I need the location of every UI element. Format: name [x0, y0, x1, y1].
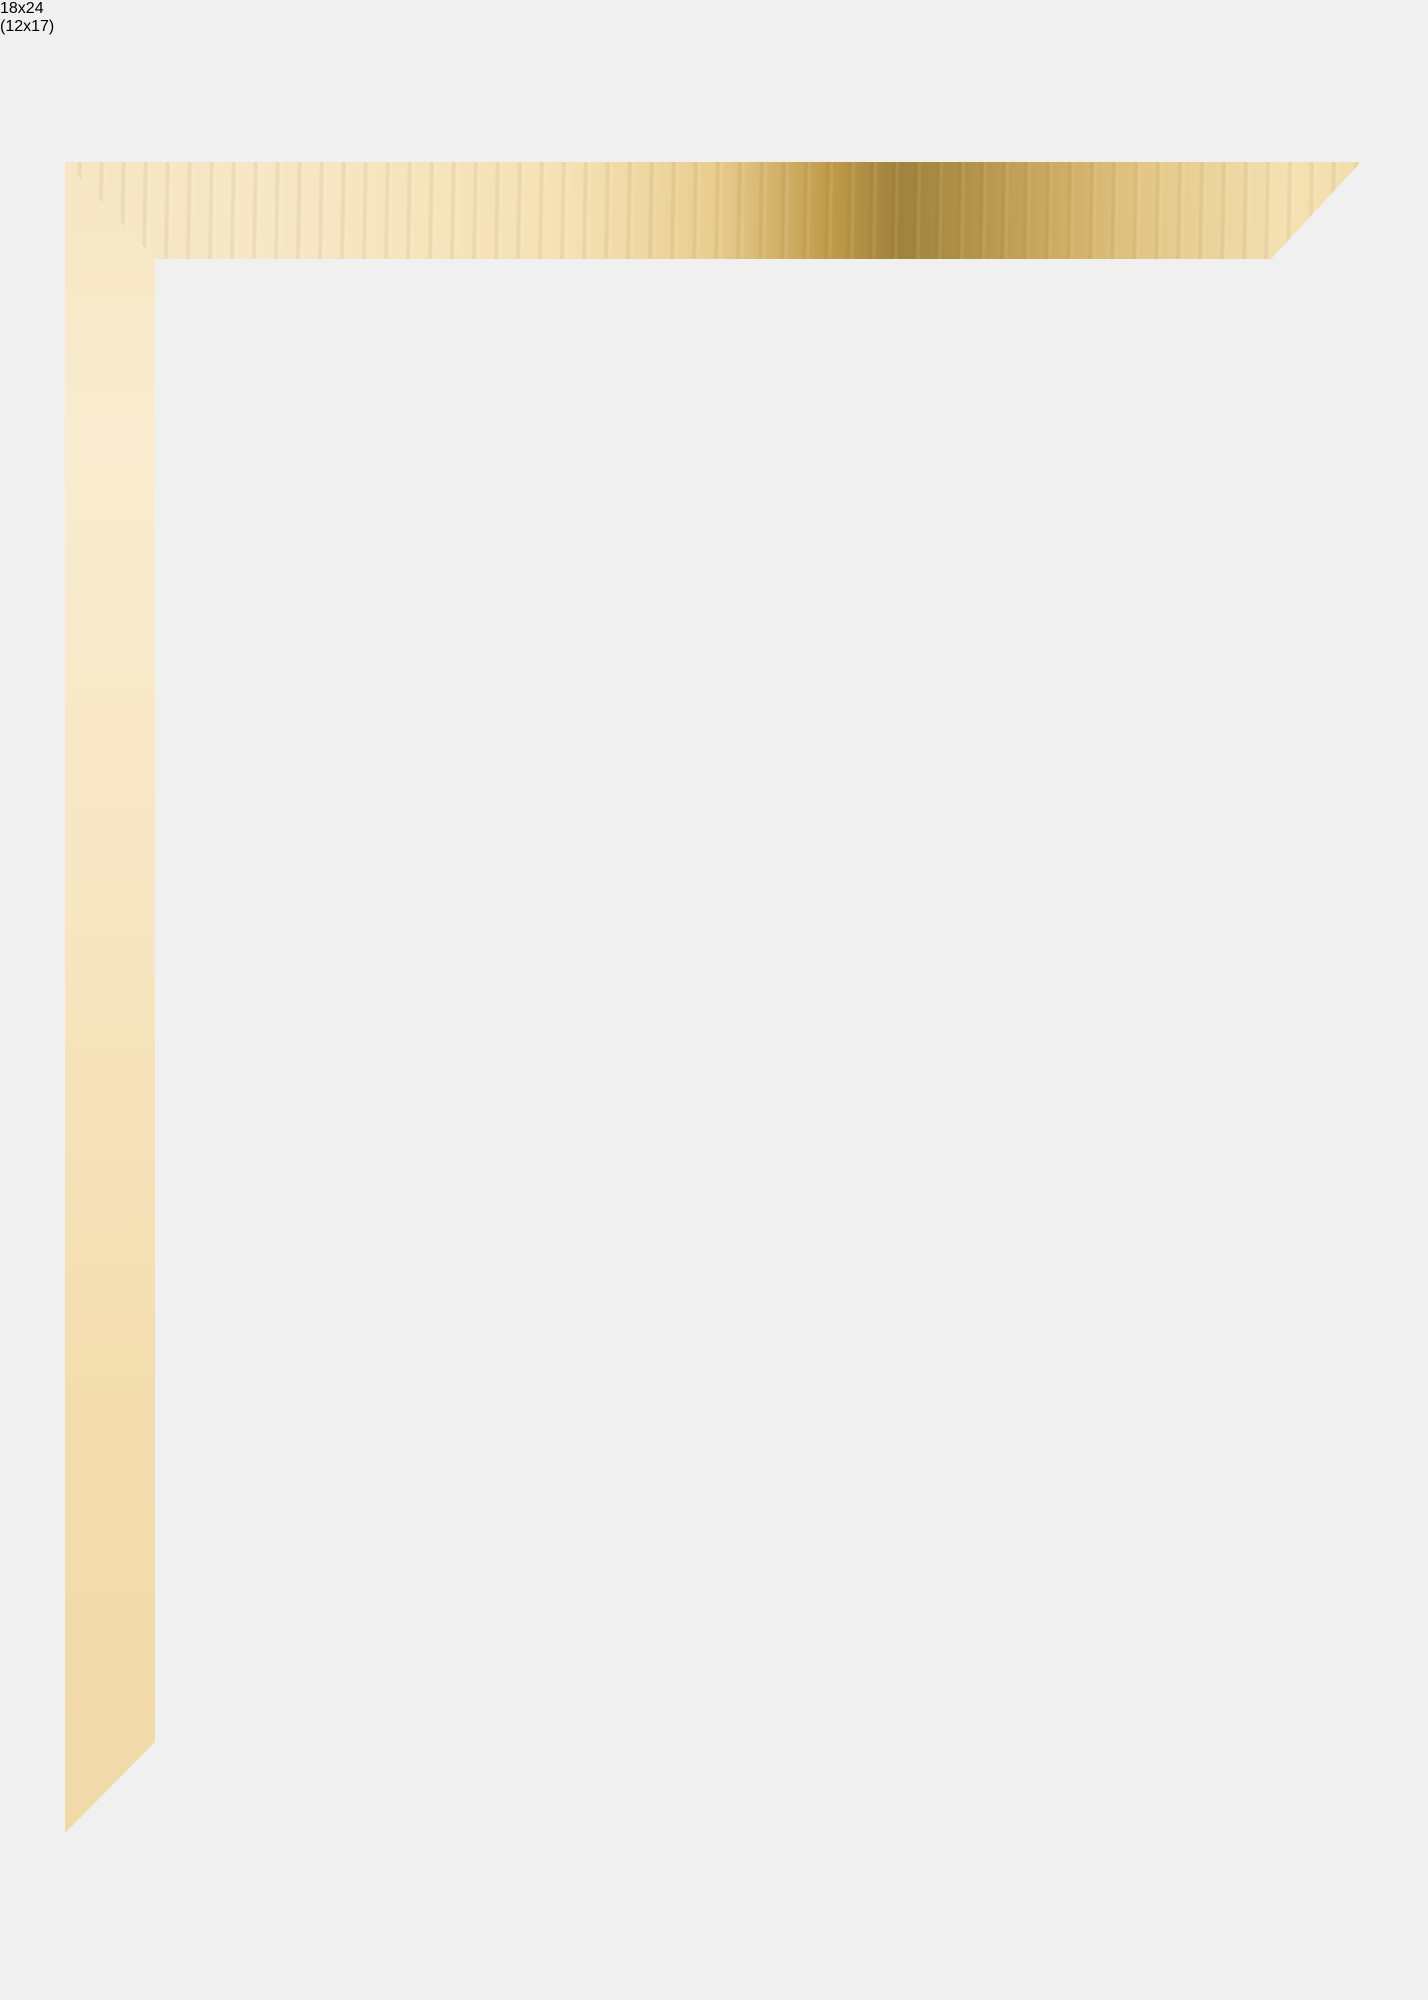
frame-top-bar — [0, 0, 1428, 2000]
frame-right-bar — [0, 0, 1428, 2000]
picture-size-label: (12x17) — [0, 18, 1428, 36]
frame-bottom-bar-shine — [0, 0, 1428, 2000]
frame-size-label: 18x24 — [0, 0, 1428, 18]
frame-top-bar-shine — [0, 0, 1428, 2000]
product-image: 18x24 (12x17) — [0, 0, 1428, 2000]
frame-bottom-bar — [0, 0, 1428, 2000]
frame-left-bar — [0, 0, 1428, 2000]
mat-opening: 18x24 (12x17) — [0, 0, 1428, 36]
